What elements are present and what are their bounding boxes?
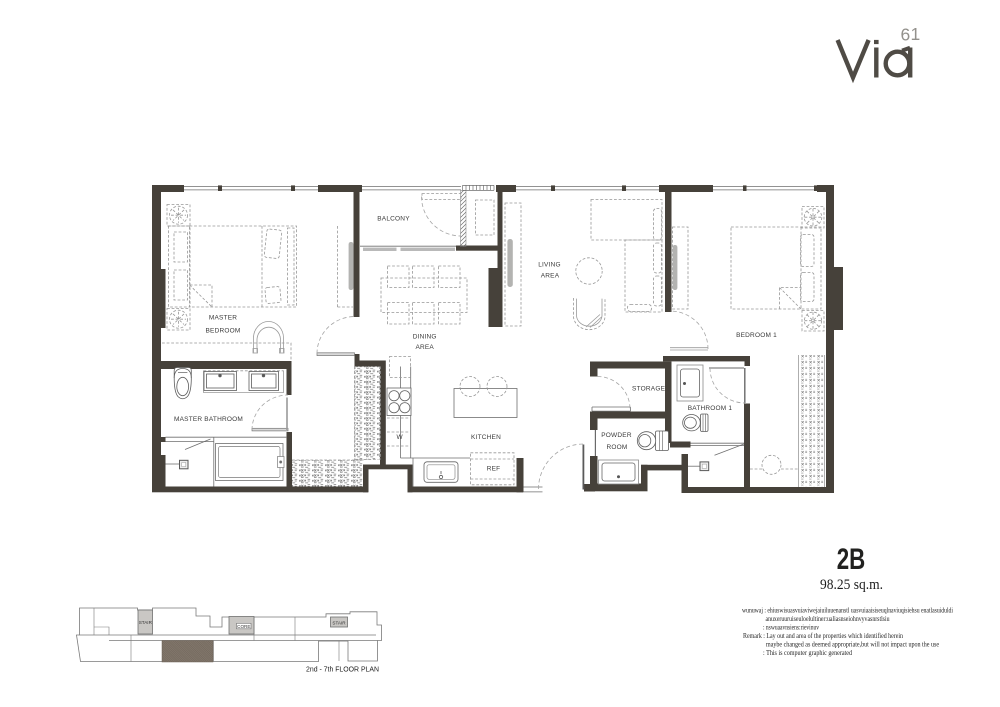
svg-text:W: W bbox=[397, 434, 404, 441]
svg-text:CORE: CORE bbox=[237, 624, 250, 629]
svg-text:maybe changed as deemed approp: maybe changed as deemed appropriate,but … bbox=[766, 641, 939, 649]
svg-text:Remark : Lay out and area of t: Remark : Lay out and area of the propert… bbox=[743, 632, 903, 640]
svg-text:STORAGE: STORAGE bbox=[632, 386, 666, 393]
svg-text:1: 1 bbox=[911, 24, 921, 44]
svg-text:AREA: AREA bbox=[541, 273, 560, 280]
svg-text:ROOM: ROOM bbox=[606, 444, 627, 451]
svg-text:STAIR: STAIR bbox=[332, 621, 346, 626]
svg-text:: nswuaavnsiens:rievinuv: : nswuaavnsiens:rievinuv bbox=[763, 624, 819, 632]
svg-text:REF: REF bbox=[487, 466, 501, 473]
svg-text:BATHROOM 1: BATHROOM 1 bbox=[688, 405, 733, 412]
svg-text:LIVING: LIVING bbox=[538, 262, 561, 269]
svg-text:2nd - 7th FLOOR PLAN: 2nd - 7th FLOOR PLAN bbox=[306, 665, 379, 674]
svg-text:BALCONY: BALCONY bbox=[377, 215, 410, 222]
svg-text:AREA: AREA bbox=[415, 344, 434, 351]
svg-text:2B: 2B bbox=[837, 543, 866, 576]
svg-text:BEDROOM 1: BEDROOM 1 bbox=[736, 332, 777, 339]
svg-text:6: 6 bbox=[901, 25, 911, 45]
svg-text:wunuwaj : ehiuswisuasvuiaviwej: wunuwaj : ehiuswisuasvuiaviwejaiuiluuena… bbox=[742, 607, 953, 615]
svg-text:MASTER BATHROOM: MASTER BATHROOM bbox=[174, 416, 243, 423]
svg-text:98.25 sq.m.: 98.25 sq.m. bbox=[820, 577, 883, 593]
svg-text:MASTER: MASTER bbox=[209, 315, 237, 322]
svg-text:DINING: DINING bbox=[413, 333, 437, 340]
svg-text:POWDER: POWDER bbox=[601, 432, 632, 439]
svg-text:KITCHEN: KITCHEN bbox=[471, 434, 501, 441]
svg-text:anuxeruuruiseuloelultiner:uali: anuxeruuruiseuloelultiner:ualiasnseiohnv… bbox=[766, 615, 890, 623]
svg-text:STAIR: STAIR bbox=[139, 620, 153, 625]
svg-text:: This is computer graphic gen: : This is computer graphic generated bbox=[763, 649, 852, 657]
svg-text:BEDROOM: BEDROOM bbox=[206, 328, 241, 335]
